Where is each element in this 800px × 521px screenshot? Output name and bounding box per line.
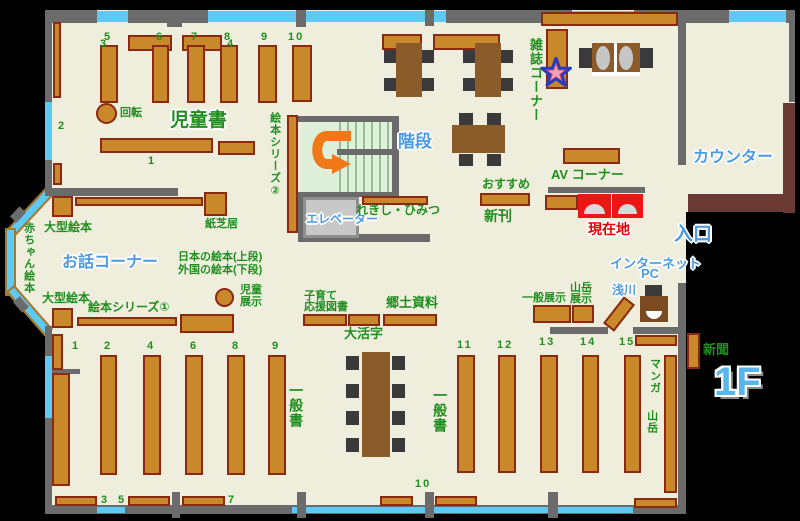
pc-monitor xyxy=(645,285,662,296)
label-story-corner: お話コーナー xyxy=(62,248,158,272)
chair xyxy=(463,78,475,91)
shelf-number: 1 xyxy=(72,340,80,353)
label-parenting-2: 応援図書 xyxy=(304,301,348,314)
shelf-number: 1 xyxy=(148,155,156,168)
shelf-bottom-5 xyxy=(128,496,170,506)
shelf-1 xyxy=(100,138,213,153)
star-icon xyxy=(540,57,572,89)
shelf-b4 xyxy=(143,355,161,475)
gate-sensor xyxy=(618,204,637,214)
shelf-number: 11 xyxy=(457,339,473,352)
shelf-local-materials xyxy=(383,314,437,326)
shelf-1b xyxy=(218,141,255,155)
chair xyxy=(392,438,405,452)
chair xyxy=(459,154,473,166)
shelf-bottom-7 xyxy=(182,496,225,506)
chair xyxy=(463,50,475,63)
shelf-newspaper xyxy=(687,333,700,369)
wall-right-lower xyxy=(678,283,686,505)
shelf-number: 5 xyxy=(118,494,126,507)
wall-inner-display xyxy=(550,327,608,334)
shelf-8 xyxy=(220,45,238,103)
pc-chair xyxy=(646,311,662,319)
chair xyxy=(346,438,359,452)
shelf-large-picture-books-2 xyxy=(52,308,73,328)
rotating-rack xyxy=(96,103,117,124)
shelf-number: 9 xyxy=(261,31,269,44)
shelf-large-print xyxy=(348,314,380,326)
wall-pillar xyxy=(296,10,306,27)
chair xyxy=(501,50,513,63)
window-left xyxy=(45,356,52,418)
shelf-bottom-10b xyxy=(435,496,477,506)
shelf-number: 15 xyxy=(619,336,635,349)
label-entrance: 入口 xyxy=(674,219,712,246)
shelf-manga-mountain xyxy=(664,355,677,493)
shelf-b13 xyxy=(540,355,558,473)
chair xyxy=(392,411,405,425)
label-large-print: 大活字 xyxy=(344,327,383,342)
shelf-number: 3 xyxy=(101,494,109,507)
wall-pillar xyxy=(548,492,558,518)
label-rotating-rack: 回転 xyxy=(120,107,142,120)
shelf-number: 4 xyxy=(147,340,155,353)
chair xyxy=(384,78,396,91)
shelf-number: 10 xyxy=(288,31,304,44)
shelf-number: 8 xyxy=(232,340,240,353)
shelf-6 xyxy=(152,45,169,103)
wall-inner-av xyxy=(548,187,645,193)
label-foreign-picture-books: 外国の絵本(下段) xyxy=(178,264,262,277)
long-study-table xyxy=(362,352,390,457)
shelf-mountain-display xyxy=(572,305,594,323)
chair xyxy=(487,113,501,125)
library-floor-map: 3 4 5 6 7 8 9 10 2 1 回転 児童書 紙芝居 大型絵本 お話コ… xyxy=(0,0,800,521)
shelf-number: 6 xyxy=(156,31,164,44)
window-bottom xyxy=(97,507,125,513)
label-japanese-picture-books: 日本の絵本(上段) xyxy=(178,251,262,264)
shelf-general-display-a xyxy=(533,305,571,323)
shelf-large-picture-books-1 xyxy=(52,196,73,217)
wall-pillar xyxy=(425,492,434,518)
shelf-b12 xyxy=(498,355,516,473)
label-kamishibai: 紙芝居 xyxy=(205,218,238,231)
sofa-armrest xyxy=(579,48,592,68)
label-magazine-corner: 雑誌コーナー xyxy=(527,38,542,134)
shelf-b6 xyxy=(185,355,203,475)
wall-top xyxy=(686,10,729,23)
shelf-b9 xyxy=(268,355,286,475)
wall-left xyxy=(45,418,52,513)
shelf-number: 10 xyxy=(415,478,431,491)
window-top xyxy=(97,11,128,22)
label-picture-book-series-1: 絵本シリーズ① xyxy=(88,301,170,315)
shelf-number: 6 xyxy=(190,340,198,353)
shelf-2 xyxy=(53,163,62,185)
gate-sensor xyxy=(584,204,605,214)
wall-pillar xyxy=(425,10,434,26)
label-mountain-display-2: 展示 xyxy=(570,293,592,306)
shelf-b11 xyxy=(457,355,475,473)
shelf-left-wall xyxy=(53,22,61,98)
wall-counter-room-right xyxy=(789,10,795,102)
label-large-picture-books-1: 大型絵本 xyxy=(44,221,92,235)
wall-pillar xyxy=(167,10,182,27)
label-new-books: 新刊 xyxy=(484,208,512,224)
floor-counter-room xyxy=(686,10,795,212)
label-childrens-books: 児童書 xyxy=(170,110,227,132)
shelf-number: 7 xyxy=(191,31,199,44)
shelf-bottom-10a xyxy=(380,496,413,506)
wall-left xyxy=(45,10,52,102)
chair xyxy=(392,356,405,370)
shelf-number: 8 xyxy=(224,31,232,44)
chair xyxy=(459,113,473,125)
shelf-kamishibai xyxy=(204,192,227,216)
reading-table xyxy=(475,43,501,97)
shelf-b15 xyxy=(624,355,641,473)
label-general-display: 一般展示 xyxy=(522,292,566,305)
window-top xyxy=(729,11,786,22)
wall-inner-childrens xyxy=(45,188,178,196)
shelf-b8 xyxy=(227,355,245,475)
label-recommended: おすすめ xyxy=(482,178,530,192)
reading-table xyxy=(452,125,505,153)
security-gate xyxy=(612,194,643,218)
chair xyxy=(422,78,434,91)
label-children-display-2: 展示 xyxy=(240,296,262,309)
reading-table xyxy=(396,43,422,97)
shelf-new-books xyxy=(480,193,530,206)
chair xyxy=(487,154,501,166)
shelf-number: 14 xyxy=(580,336,596,349)
children-display-table xyxy=(215,288,234,307)
security-gate xyxy=(578,194,611,218)
u-turn-arrow-icon xyxy=(305,127,355,181)
shelf-bottom-3 xyxy=(55,496,97,506)
shelf-b1a xyxy=(52,334,63,370)
wall-pillar xyxy=(297,492,306,518)
label-counter: カウンター xyxy=(693,143,773,167)
sofa xyxy=(592,43,640,73)
shelf-number: 13 xyxy=(539,336,555,349)
sofa-armrest xyxy=(640,48,653,68)
shelf-b14 xyxy=(582,355,599,473)
chair xyxy=(392,384,405,398)
shelf-10 xyxy=(292,45,312,102)
wall-right-upper xyxy=(678,10,686,165)
shelf-av-corner xyxy=(563,148,620,164)
label-current-location: 現在地 xyxy=(588,219,630,239)
label-av-corner: AV コーナー xyxy=(551,168,624,183)
shelf-b1b xyxy=(52,373,70,486)
label-asakawa: 浅川 xyxy=(612,281,636,298)
shelf-picture-book-series-2 xyxy=(287,115,298,233)
counter-desk-horizontal xyxy=(688,194,795,212)
chair xyxy=(346,384,359,398)
label-newspaper: 新聞 xyxy=(703,343,729,358)
label-local-materials: 郷土資料 xyxy=(386,296,438,311)
window-top xyxy=(208,11,296,22)
shelf-b2 xyxy=(100,355,117,475)
label-picture-book-series-2: 絵本シリーズ② xyxy=(268,112,281,236)
shelf-picture-book-series-1b xyxy=(180,314,234,333)
sofa-base xyxy=(592,72,640,76)
label-baby-picture-books: 赤ちゃん絵本 xyxy=(22,222,35,326)
window-left xyxy=(45,102,52,160)
shelf-av-side xyxy=(545,195,578,210)
label-large-picture-books-2: 大型絵本 xyxy=(42,292,90,306)
shelf-story-corner xyxy=(75,197,203,206)
shelf-5 xyxy=(100,45,118,103)
chair xyxy=(501,78,513,91)
floor-number: 1F xyxy=(714,360,761,405)
label-general-books-right: 一般書 xyxy=(432,388,448,444)
window-bottom xyxy=(292,507,548,513)
chair xyxy=(346,411,359,425)
label-pc: PC xyxy=(641,266,659,281)
sofa-cushion xyxy=(596,46,610,70)
chair xyxy=(384,50,396,63)
shelf-number: 7 xyxy=(228,494,236,507)
shelf-picture-book-series-1a xyxy=(77,317,177,326)
label-mountain: 山岳 xyxy=(645,410,658,448)
chair xyxy=(422,50,434,63)
shelf-top-right xyxy=(541,12,678,26)
wall-pillar xyxy=(172,492,180,518)
shelf-b15-top xyxy=(635,335,677,346)
shelf-number: 2 xyxy=(58,120,66,133)
label-stairs: 階段 xyxy=(398,127,432,152)
shelf-number: 2 xyxy=(104,340,112,353)
label-history-secrets: れきし・ひみつ xyxy=(356,204,440,218)
wall-left xyxy=(45,326,52,356)
shelf-bottom-right xyxy=(634,498,677,508)
window-bottom xyxy=(558,507,633,513)
label-children-display-1: 児童 xyxy=(240,284,262,297)
pc-desk xyxy=(640,296,668,322)
wall-inner-pc xyxy=(633,327,678,334)
shelf-9 xyxy=(258,45,277,103)
sofa-divider xyxy=(614,43,617,73)
shelf-number: 5 xyxy=(104,31,112,44)
label-general-books-left: 一般書 xyxy=(288,383,304,439)
shelf-7 xyxy=(187,45,205,103)
chair xyxy=(346,356,359,370)
shelf-parenting xyxy=(303,314,347,326)
shelf-number: 9 xyxy=(272,340,280,353)
shelf-number: 12 xyxy=(497,339,513,352)
sofa-cushion xyxy=(619,46,633,70)
